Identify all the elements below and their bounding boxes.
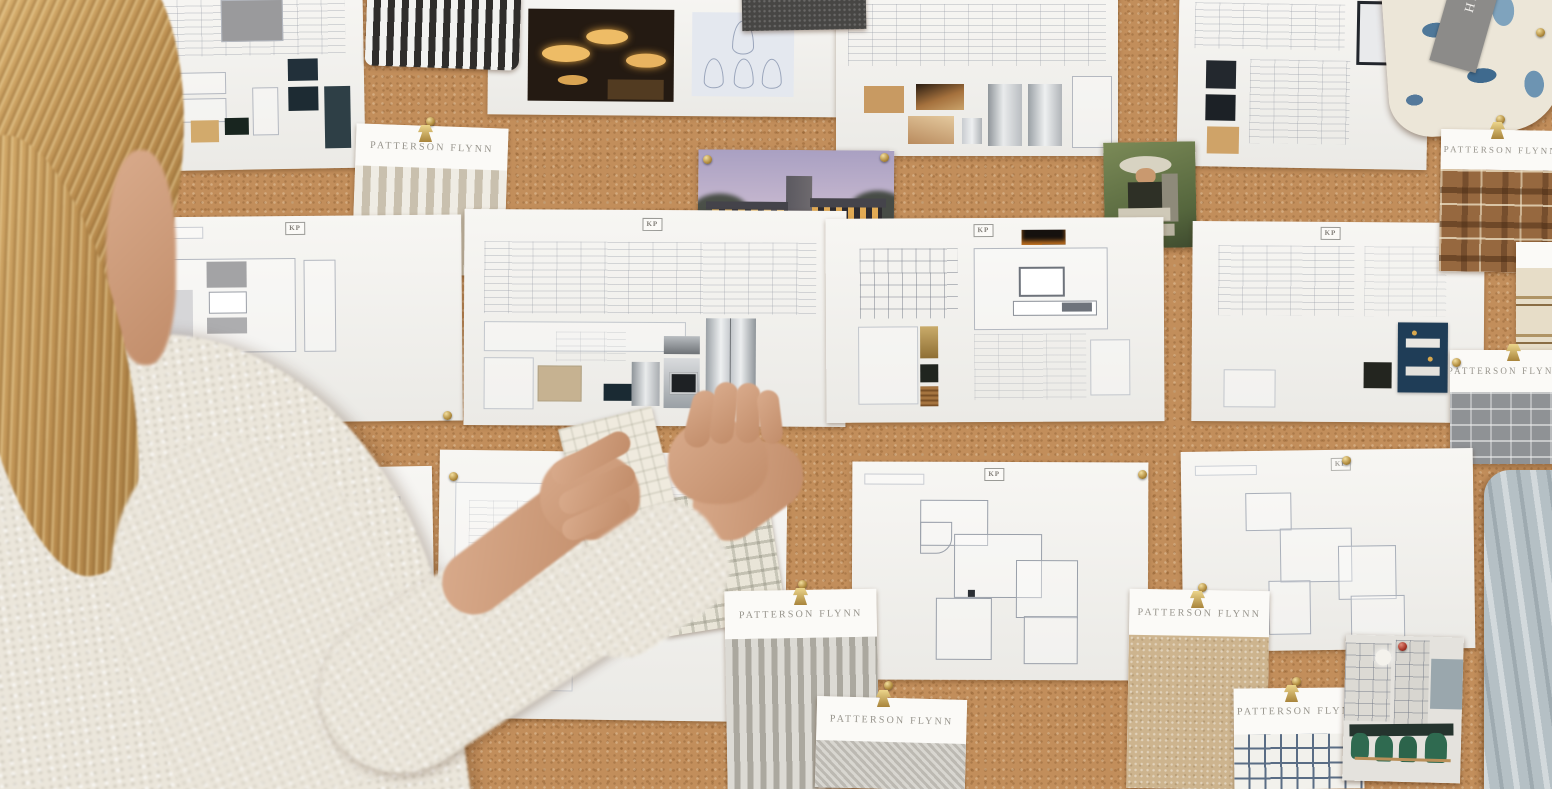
- push-pin-icon: [1292, 677, 1301, 686]
- material-thumbnail-dark: [1205, 94, 1235, 121]
- dark-garment: [1128, 182, 1166, 209]
- bunk-elevation: [1364, 246, 1446, 317]
- tv-outline: [1019, 267, 1065, 297]
- plan-room: [1245, 493, 1292, 532]
- pendant-glow: [542, 45, 590, 62]
- material-thumbnail-dark: [288, 86, 318, 111]
- elevation-drawing: [848, 4, 1106, 66]
- pendant-lights-photo: [528, 9, 675, 102]
- swatch-card-gray-twill: PATTERSON FLYNN: [815, 696, 967, 789]
- blue-gray-cabinet: [1430, 659, 1463, 710]
- material-thumbnail-navy: [604, 384, 632, 401]
- material-thumbnail-teal: [324, 86, 351, 148]
- push-pin-icon: [1536, 28, 1545, 37]
- brass-finish-swatch: [920, 326, 938, 358]
- panel-photo: [1028, 84, 1062, 146]
- kitchen-elevations: [484, 241, 816, 315]
- fixture-sketch: [252, 87, 279, 135]
- plan-fragment: [1223, 369, 1275, 407]
- drawing-sheet-kitchen-top-right: [836, 0, 1118, 156]
- fixture-sketches: [556, 331, 626, 361]
- cabinet-elevation: [1072, 76, 1112, 148]
- bookshelf-wall: [1394, 640, 1430, 727]
- push-pin-icon: [1342, 456, 1351, 465]
- schumacher-card-label: SCH: [1460, 0, 1485, 17]
- material-thumbnail-dark: [1206, 60, 1236, 89]
- kp-monogram: KP: [285, 222, 305, 235]
- gray-twill-fabric: [815, 740, 966, 789]
- push-pin-icon: [1138, 470, 1147, 479]
- island-elevation: [974, 334, 1086, 401]
- cream-stripe-fabric: [1516, 268, 1552, 360]
- push-pin-icon: [1452, 358, 1461, 367]
- material-thumbnail-wood: [191, 120, 219, 142]
- shelving-elevation: [860, 248, 958, 319]
- plan-garage: [1024, 616, 1078, 664]
- floor-plan-drawing: [896, 494, 1111, 663]
- swatch-card-brand: PATTERSON FLYNN: [816, 696, 967, 744]
- wood-stack-photo: [920, 386, 938, 406]
- bunk-bedding: [1406, 338, 1440, 347]
- oven-window: [670, 372, 698, 394]
- blue-floral-fabric-drape: SCH: [1381, 0, 1552, 140]
- range-hood-photo: [664, 336, 700, 354]
- section-drawing: [303, 260, 336, 352]
- person-right-fingers: [735, 383, 760, 443]
- pendant-glow: [626, 53, 666, 67]
- schumacher-sample-card: SCH: [1429, 0, 1501, 73]
- drawing-sheet-kitchen-center: KP: [463, 209, 846, 427]
- push-pin-icon: [703, 155, 712, 164]
- green-chair: [1351, 733, 1370, 759]
- title-block: [864, 474, 924, 485]
- plan-room: [1268, 580, 1311, 635]
- swatch-card-gray-plaid: PATTERSON FLYNN: [1450, 350, 1552, 464]
- swatch-card-brand: PATTERSON FLYNN: [1450, 350, 1552, 392]
- media-console: [1013, 300, 1097, 315]
- corkboard-moodboard-scene: SCH PATTERSON FLYNN KP: [0, 0, 1552, 789]
- panel-photo: [988, 84, 1022, 146]
- plan-garage: [936, 598, 992, 660]
- brass-sconce: [1412, 331, 1417, 336]
- pendant-outline: [762, 59, 782, 89]
- island-wood-swatch: [538, 365, 582, 401]
- plan-fragment: [484, 357, 534, 409]
- pendant-glow: [558, 75, 588, 85]
- living-room-plan: [858, 326, 918, 404]
- dining-room-render-photo: [1342, 634, 1464, 783]
- elevation-drawing: [1195, 2, 1346, 51]
- kp-monogram: KP: [984, 468, 1004, 481]
- push-pin-icon: [426, 117, 435, 126]
- black-white-stripe-fabric: [365, 0, 522, 71]
- charcoal-fabric-swatch: [742, 0, 867, 31]
- navy-bunk-photo: [1398, 322, 1448, 392]
- elevation-drawing: [221, 0, 284, 42]
- dishwasher-photo: [632, 362, 660, 406]
- title-block: [1195, 465, 1257, 476]
- pendant-outline: [734, 58, 754, 88]
- push-pin-icon: [443, 411, 452, 420]
- material-thumbnail-tan: [1207, 126, 1239, 154]
- red-push-pin-icon: [1398, 642, 1407, 651]
- plan-room: [1016, 560, 1078, 618]
- cabinet-elevation: [1249, 59, 1350, 145]
- console-dark-bay: [1062, 302, 1092, 311]
- bunk-elevation: [1218, 245, 1354, 316]
- push-pin-icon: [798, 580, 807, 589]
- wood-detail-photo: [916, 84, 964, 110]
- pendant-glow: [608, 79, 664, 99]
- plan-room: [1351, 595, 1406, 638]
- drawing-sheet-floor-plan-main: KP: [852, 461, 1149, 680]
- swatch-card-cream-stripe: [1516, 242, 1552, 360]
- push-pin-icon: [884, 681, 893, 690]
- bunk-bedding: [1406, 366, 1440, 375]
- pendant-outline: [704, 58, 724, 88]
- kp-monogram: KP: [973, 224, 993, 237]
- pendant-glow: [586, 29, 628, 44]
- material-thumbnail-dark: [920, 364, 938, 382]
- plan-room: [1338, 545, 1397, 600]
- push-pin-icon: [449, 472, 458, 481]
- material-thumbnail-dark: [225, 118, 249, 135]
- linear-fireplace-photo: [1022, 230, 1066, 245]
- push-pin-icon: [1198, 583, 1207, 592]
- drawing-sheet-media-wall: KP: [825, 217, 1164, 423]
- plan-curved-wall: [920, 522, 952, 554]
- brass-sconce: [1428, 357, 1433, 362]
- panel: [206, 261, 246, 287]
- plan-marker: [968, 590, 975, 597]
- wood-texture-photo: [908, 116, 954, 144]
- inset: [209, 291, 247, 313]
- material-thumbnail-wood: [864, 86, 904, 113]
- media-wall-elevation: [974, 247, 1108, 330]
- material-thumbnail-dark: [288, 58, 318, 81]
- blue-gray-fabric-drape: [1484, 470, 1552, 789]
- push-pin-icon: [880, 153, 889, 162]
- cabinet-elevation: [1090, 339, 1130, 395]
- kp-monogram: KP: [642, 218, 662, 231]
- metal-thumbnail: [962, 118, 982, 144]
- material-thumbnail-dark: [1364, 362, 1392, 388]
- kp-monogram: KP: [1321, 227, 1341, 240]
- panel: [207, 317, 247, 333]
